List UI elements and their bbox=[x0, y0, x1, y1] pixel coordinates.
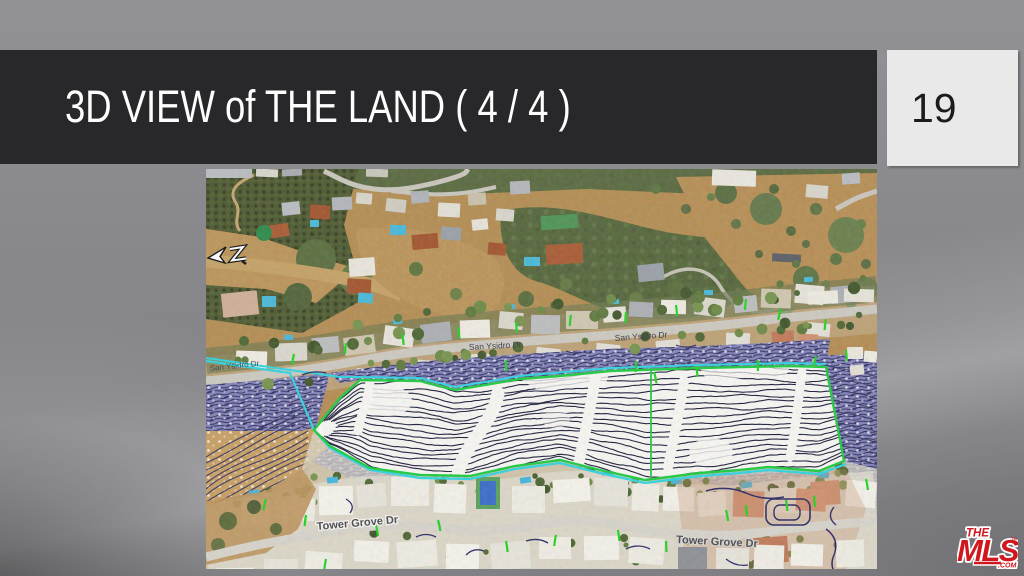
svg-text:TM: TM bbox=[1011, 536, 1017, 541]
